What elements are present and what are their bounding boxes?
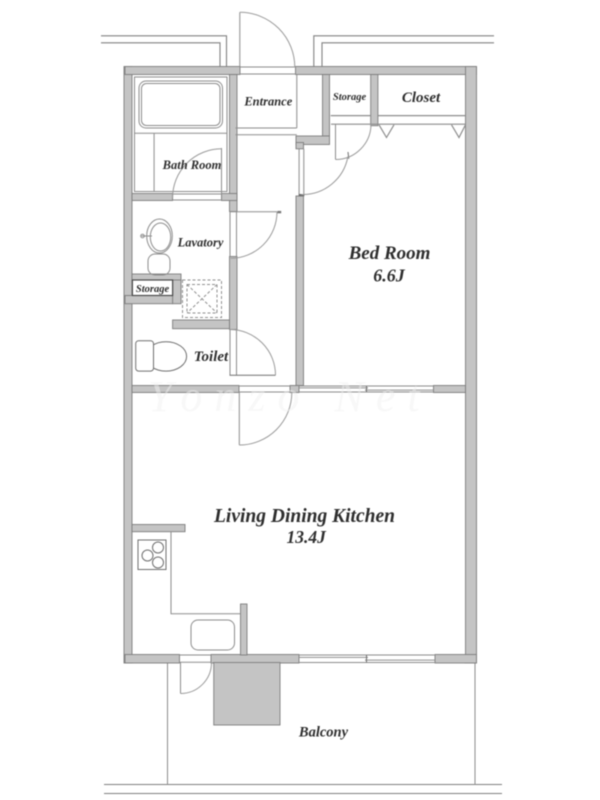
svg-text:Entrance: Entrance [243,95,292,109]
svg-text:Balcony: Balcony [298,725,349,741]
svg-text:6.6J: 6.6J [373,266,406,286]
svg-text:Storage: Storage [333,92,367,103]
svg-text:Closet: Closet [402,90,441,106]
svg-text:13.4J: 13.4J [287,527,328,547]
svg-text:Lavatory: Lavatory [177,235,224,249]
svg-text:Bath Room: Bath Room [162,158,222,172]
svg-text:Yonzo Net: Yonzo Net [148,372,432,421]
svg-text:Bed Room: Bed Room [348,243,431,264]
svg-text:Storage: Storage [136,284,170,295]
svg-text:Toilet: Toilet [194,349,229,365]
svg-text:Living Dining Kitchen: Living Dining Kitchen [213,506,395,527]
